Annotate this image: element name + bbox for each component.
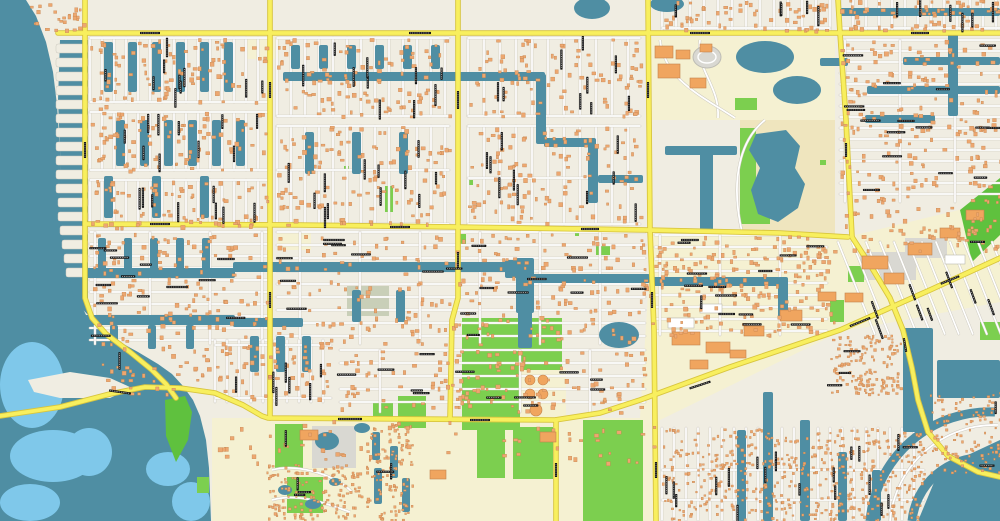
map-canvas[interactable] [0, 0, 1000, 521]
map-viewport: { "meta":{"type":"city-street-map","styl… [0, 0, 1000, 521]
